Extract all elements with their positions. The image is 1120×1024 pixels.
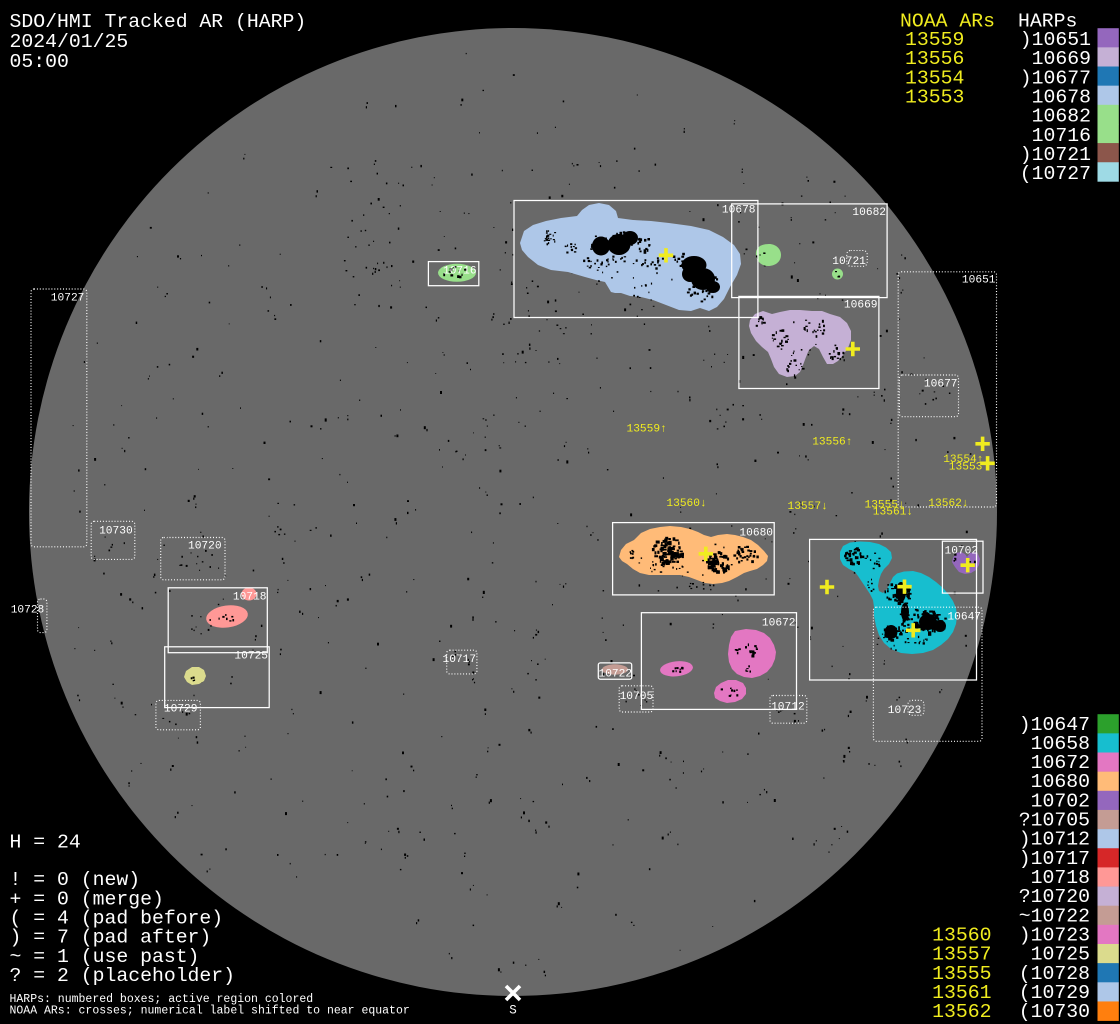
svg-text:SDO/HMI Tracked AR (HARP): SDO/HMI Tracked AR (HARP) (10, 11, 307, 33)
svg-text:10723: 10723 (888, 705, 922, 717)
svg-text:10729: 10729 (164, 704, 198, 716)
svg-text:10705: 10705 (620, 691, 654, 703)
svg-text:10728: 10728 (11, 605, 45, 617)
svg-text:H = 24: H = 24 (10, 832, 81, 854)
svg-text:2024/01/25: 2024/01/25 (10, 31, 129, 53)
svg-text:10702: 10702 (945, 546, 979, 558)
svg-text:05:00: 05:00 (10, 51, 69, 73)
svg-text:10718: 10718 (233, 592, 267, 604)
svg-text:10730: 10730 (99, 526, 133, 538)
svg-text:10721: 10721 (832, 256, 866, 268)
svg-text:(10730: (10730 (1019, 1001, 1090, 1023)
svg-text:13553: 13553 (949, 462, 983, 474)
svg-text:10722: 10722 (599, 669, 633, 681)
svg-text:13553: 13553 (905, 86, 964, 108)
svg-text:NOAA ARs: crosses; numerical l: NOAA ARs: crosses; numerical label shift… (10, 1004, 410, 1017)
svg-text:13560↓: 13560↓ (666, 498, 706, 510)
svg-text:10647: 10647 (947, 612, 981, 624)
svg-text:10680: 10680 (739, 528, 773, 540)
svg-text:10712: 10712 (771, 702, 805, 714)
svg-text:10678: 10678 (722, 205, 756, 217)
svg-text:10727: 10727 (51, 293, 85, 305)
svg-text:10716: 10716 (443, 266, 477, 278)
svg-text:10717: 10717 (443, 654, 477, 666)
svg-text:10669: 10669 (844, 300, 878, 312)
svg-text:10672: 10672 (762, 618, 796, 630)
svg-text:10720: 10720 (188, 541, 222, 553)
svg-text:(10727: (10727 (1020, 163, 1091, 185)
svg-text:? = 2 (placeholder): ? = 2 (placeholder) (10, 965, 236, 987)
svg-text:10651: 10651 (962, 275, 996, 287)
svg-text:10682: 10682 (852, 207, 886, 219)
svg-text:13557↓: 13557↓ (788, 501, 828, 513)
svg-text:S: S (509, 1004, 517, 1018)
svg-text:10677: 10677 (924, 379, 958, 391)
svg-text:13561↓: 13561↓ (873, 507, 913, 519)
svg-text:13556↑: 13556↑ (812, 436, 852, 448)
svg-text:13562↓: 13562↓ (928, 498, 968, 510)
svg-text:13562: 13562 (932, 1001, 991, 1023)
svg-text:13559↑: 13559↑ (627, 424, 667, 436)
svg-text:10725: 10725 (234, 651, 268, 663)
